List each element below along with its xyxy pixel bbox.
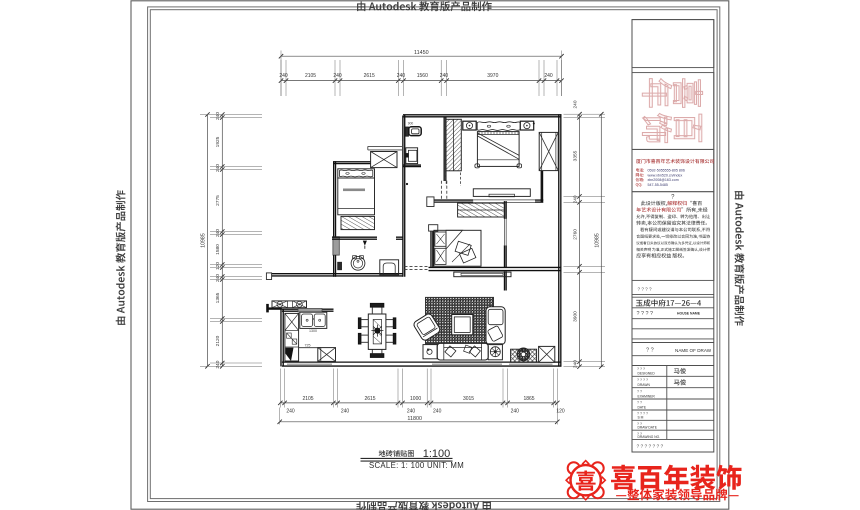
svg-text:240: 240 <box>544 73 553 79</box>
svg-text:? ? ? ? ? ? ?: ? ? ? ? ? ? ? <box>637 444 664 450</box>
svg-text:900: 900 <box>408 122 414 126</box>
svg-text:2615: 2615 <box>364 73 375 79</box>
svg-text:NAME OF DRAW: NAME OF DRAW <box>675 348 712 353</box>
svg-text:? ? ? ?: ? ? ? ? <box>637 311 654 317</box>
svg-text:DRAW DATE: DRAW DATE <box>638 426 658 430</box>
svg-text:3355: 3355 <box>573 150 579 161</box>
svg-text:1000: 1000 <box>410 396 421 402</box>
svg-text:2120: 2120 <box>215 335 221 346</box>
svg-text:DATE: DATE <box>638 405 647 409</box>
svg-text:240: 240 <box>341 409 350 415</box>
svg-text:240: 240 <box>215 164 221 172</box>
svg-text:240: 240 <box>407 409 416 415</box>
svg-text:240: 240 <box>433 409 442 415</box>
svg-text:DRAWING NO.: DRAWING NO. <box>638 435 661 439</box>
svg-text:0592-5055555-805 806: 0592-5055555-805 806 <box>648 169 685 173</box>
svg-text:11450: 11450 <box>414 50 429 56</box>
svg-text:240: 240 <box>397 73 406 79</box>
svg-text:1925: 1925 <box>215 136 221 147</box>
svg-text:240: 240 <box>573 360 579 368</box>
svg-text:240: 240 <box>573 100 579 108</box>
svg-text:120: 120 <box>215 262 221 270</box>
svg-text:? ? ? ?: ? ? ? ? <box>637 378 648 382</box>
svg-text:DRAWN: DRAWN <box>638 383 651 387</box>
svg-text:? ?: ? ? <box>637 401 642 405</box>
svg-text:? ? ?: ? ? ? <box>637 367 645 371</box>
svg-text:xbn2008@163.com: xbn2008@163.com <box>648 178 679 182</box>
svg-text:120: 120 <box>556 409 565 415</box>
svg-text:DESIGNED: DESIGNED <box>638 372 656 376</box>
svg-text:2760: 2760 <box>573 229 579 240</box>
svg-text:? ?: ? ? <box>637 389 642 393</box>
svg-text:240: 240 <box>333 73 342 79</box>
svg-text:3970: 3970 <box>487 73 498 79</box>
svg-text:2105: 2105 <box>305 73 316 79</box>
svg-text:1300: 1300 <box>309 329 317 333</box>
svg-text:725: 725 <box>305 343 311 347</box>
svg-text:HOUSE NAME: HOUSE NAME <box>677 312 701 316</box>
svg-text:3015: 3015 <box>463 396 474 402</box>
svg-text:240: 240 <box>215 229 221 237</box>
svg-text:SCALE: 1: 100 UNIT: MM: SCALE: 1: 100 UNIT: MM <box>369 461 464 470</box>
svg-text:240: 240 <box>440 73 449 79</box>
svg-text:240: 240 <box>215 274 221 282</box>
svg-text:1865: 1865 <box>523 396 534 402</box>
svg-text:11800: 11800 <box>407 416 422 422</box>
svg-text:? ?: ? ? <box>646 348 654 354</box>
svg-text:S M: S M <box>638 416 644 420</box>
svg-text:240: 240 <box>215 360 221 368</box>
svg-text:547-55-5485: 547-55-5485 <box>648 183 668 187</box>
svg-text:240: 240 <box>279 73 288 79</box>
svg-text:3900: 3900 <box>573 311 579 322</box>
svg-text:1580: 1580 <box>215 244 221 255</box>
svg-text:1365: 1365 <box>215 292 221 303</box>
svg-text:240: 240 <box>573 195 579 203</box>
svg-text:10985: 10985 <box>595 233 601 248</box>
svg-text:EXAMINER: EXAMINER <box>638 394 656 398</box>
svg-text:10985: 10985 <box>201 233 207 248</box>
svg-text:2105: 2105 <box>302 396 313 402</box>
svg-text:240: 240 <box>511 409 520 415</box>
svg-text:240: 240 <box>286 409 295 415</box>
svg-text:2775: 2775 <box>215 195 221 206</box>
svg-text:1560: 1560 <box>417 73 428 79</box>
svg-text:www.xbn520.cn/index: www.xbn520.cn/index <box>648 173 683 177</box>
svg-text:? ? ? ?: ? ? ? ? <box>638 287 652 292</box>
svg-text:240: 240 <box>215 112 221 120</box>
svg-text:2615: 2615 <box>364 396 375 402</box>
